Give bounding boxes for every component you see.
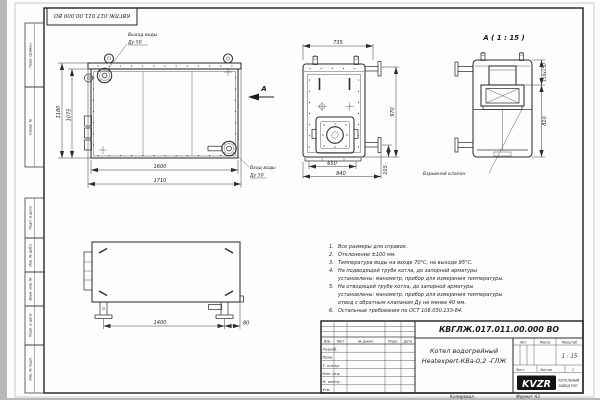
- dim-80: 80: [243, 321, 249, 327]
- stamp-podp-data-1: Подп. и дата: [29, 206, 33, 229]
- title-doc-number: КВГЛЖ.017.011.00.000 ВО: [439, 325, 559, 334]
- note-1: 1. Все размеры для справок.: [327, 243, 507, 251]
- title-block: Изм. Лист № докум. Подп. Дата Разраб. Пр…: [321, 321, 583, 393]
- copied-label: Копировал: [450, 394, 474, 399]
- detail-view-a: А ( 1 : 15 ) 150x250 8: [423, 34, 548, 177]
- bottom-side-view: 1400 80: [84, 242, 249, 329]
- technical-notes: 1. Все размеры для справок. 2. Отклонени…: [327, 243, 507, 315]
- note-number: 4.: [327, 267, 338, 283]
- note-2: 2. Отклонение ±100 мм.: [327, 251, 507, 259]
- detail-view-title: А ( 1 : 15 ): [482, 34, 524, 42]
- note-text: Все размеры для справок.: [338, 243, 507, 251]
- col-list: Лист: [335, 339, 344, 343]
- dim-150x250: 150x250: [542, 63, 547, 82]
- explosion-valve: [481, 85, 524, 110]
- list-label: Лист: [515, 368, 524, 372]
- note-text: Отклонение ±100 мм.: [338, 251, 507, 259]
- stamp-perv-primen: Перв. примен.: [29, 42, 33, 67]
- explosion-valve-label: Взрывной клапан: [423, 171, 465, 177]
- row-nkontr: Н. контр.: [323, 379, 341, 384]
- dim-105: 105: [383, 165, 389, 175]
- listov-label: Листов: [539, 368, 552, 372]
- drawing-sheet-svg: КВГЛЖ.017.011.00.000 ВО Копировал Формат…: [0, 0, 600, 400]
- note-4: 4. На подводящей трубе котла, до запорно…: [327, 267, 507, 283]
- inlet-label: Вход воды: [250, 165, 276, 171]
- scale-value: 1 : 15: [562, 354, 578, 360]
- sheet-frame: КВГЛЖ.017.011.00.000 ВО Копировал Формат…: [15, 3, 594, 399]
- note-5: 5. На отводящей трубе котла, до запорной…: [327, 283, 507, 307]
- scanned-drawing-background: { "sheet": { "doc_number": "КВГЛЖ.017.01…: [0, 0, 600, 400]
- logo-kvzr: KVZR: [522, 379, 551, 390]
- dim-840: 840: [336, 171, 346, 177]
- stamp-podp-data-2: Подп. и дата: [29, 314, 33, 337]
- dim-735: 735: [333, 40, 343, 46]
- outlet-dn-label: Ду 50: [127, 40, 142, 46]
- note-text: Температура воды на входе 70°С, на выход…: [338, 259, 507, 267]
- side-flange-bottom: [365, 138, 381, 153]
- col-izm: Изм.: [324, 339, 332, 343]
- format-label: Формат А3: [516, 394, 540, 399]
- stamp-sprav-no: Справ. №: [29, 118, 33, 135]
- row-prov: Пров.: [323, 355, 334, 360]
- stamp-vzam-inv: Взам. инв. №: [29, 277, 33, 300]
- support-foot-left: [95, 302, 112, 319]
- row-tkontr: Т. контр.: [323, 363, 341, 368]
- inlet-dn-label: Ду 50: [249, 173, 264, 179]
- masshtab-label: Масштаб: [562, 340, 577, 344]
- view-direction-arrow-a: А: [248, 85, 274, 101]
- note-number: 6.: [327, 307, 338, 315]
- stamp-inv-podl: Инв. № подл.: [29, 357, 33, 380]
- support-foot-right: [209, 302, 234, 319]
- dim-1400: 1400: [154, 320, 167, 326]
- company-logo: KVZR КОТЕЛЬНЫЙ ЗАВОД РЭП: [517, 376, 580, 391]
- dim-1075: 1075: [67, 109, 73, 122]
- product-name-line2: Heatexpert-КВа-0,2 -ГЛЖ: [422, 357, 508, 365]
- listov-value: 1: [572, 368, 574, 372]
- note-number: 5.: [327, 283, 338, 307]
- water-outlet-flange: [97, 68, 111, 82]
- margin-stamps: Перв. примен. Справ. № Подп. и дата Инв.…: [25, 23, 44, 393]
- outlet-label: Выход воды: [128, 32, 158, 38]
- col-data: Дата: [403, 339, 412, 343]
- row-nachotd: Нач. отд.: [323, 371, 341, 376]
- dim-1600: 1600: [154, 164, 167, 170]
- col-doc: № докум.: [357, 339, 374, 343]
- massa-label: Масса: [540, 340, 550, 344]
- dim-810: 810: [542, 116, 548, 126]
- note-text: Остальные требования по ОСТ 108.030.133-…: [338, 307, 507, 315]
- side-flange-top: [365, 62, 381, 77]
- water-inlet-flange: [208, 141, 236, 155]
- product-name-line1: Котел водогрейный: [430, 347, 498, 355]
- company-name-line2: ЗАВОД РЭП: [559, 384, 579, 388]
- view-arrow-letter: А: [260, 85, 266, 93]
- inverted-doc-number: КВГЛЖ.017.011.00.000 ВО: [53, 12, 130, 18]
- col-podp: Подп.: [388, 339, 398, 343]
- dim-970: 970: [390, 107, 396, 117]
- dim-1710: 1710: [154, 178, 167, 184]
- note-text: На отводящей трубе котла, до запорной ар…: [338, 283, 507, 307]
- lit-label: Лит.: [519, 340, 527, 344]
- note-number: 3.: [327, 259, 338, 267]
- front-view-boiler: 1180 1075 1600 1710 Выход воды Ду 50 Вхо…: [56, 32, 276, 188]
- burner-hatch: [312, 117, 358, 153]
- row-razrab: Разраб.: [323, 347, 338, 352]
- note-number: 2.: [327, 251, 338, 259]
- side-view-boiler: 735 970 650 840 105: [303, 40, 399, 179]
- stamp-inv-dubl: Инв. № дубл.: [29, 243, 33, 266]
- row-utv: Утв.: [323, 387, 331, 392]
- company-name-line1: КОТЕЛЬНЫЙ: [559, 378, 580, 383]
- dim-1180: 1180: [56, 106, 62, 119]
- note-3: 3. Температура воды на входе 70°С, на вы…: [327, 259, 507, 267]
- dim-650: 650: [327, 161, 337, 167]
- note-6: 6. Остальные требования по ОСТ 108.030.1…: [327, 307, 507, 315]
- note-text: На подводящей трубе котла, до запорной а…: [338, 267, 507, 283]
- note-number: 1.: [327, 243, 338, 251]
